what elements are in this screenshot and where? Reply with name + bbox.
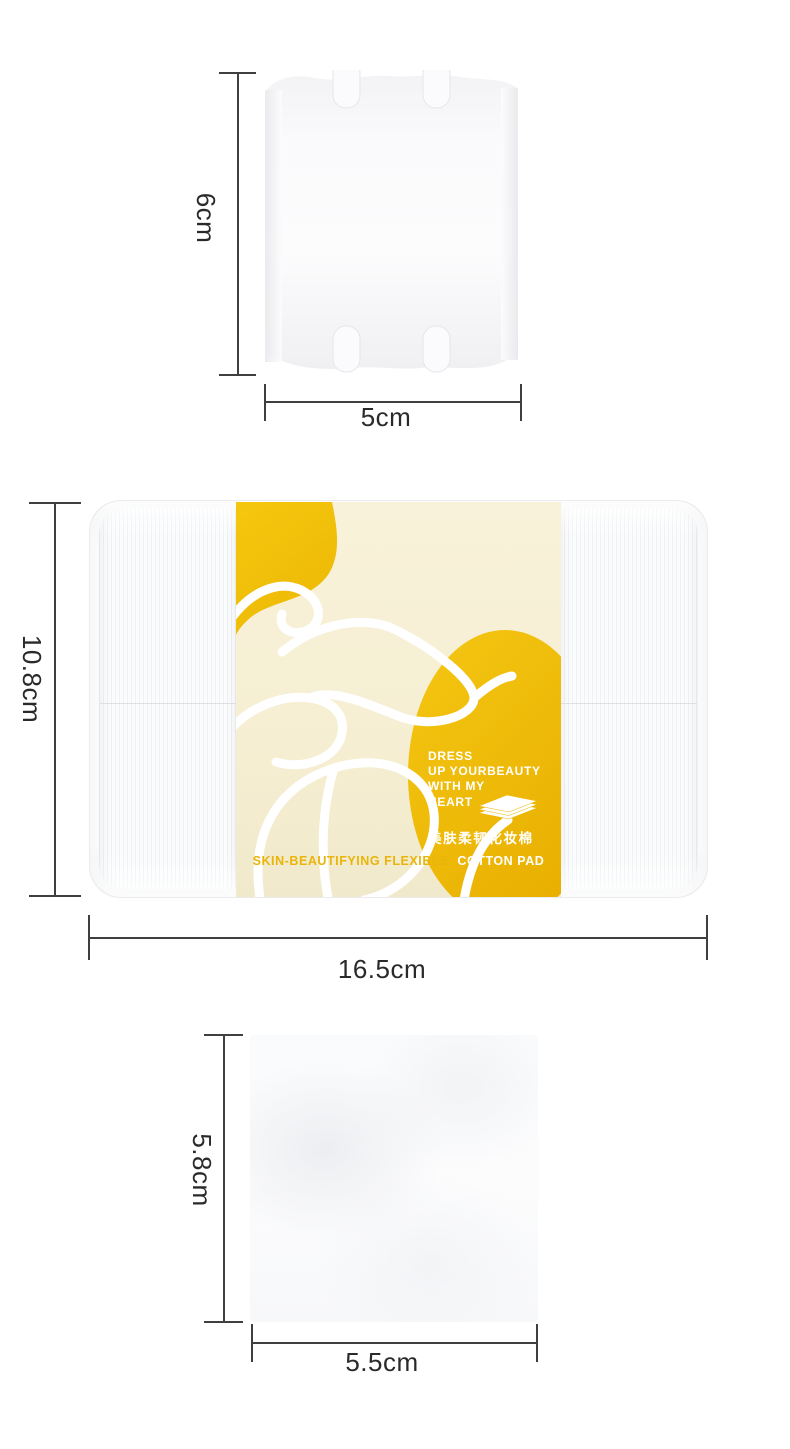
width-value-package: 16.5cm (312, 954, 452, 984)
dimension-cap (29, 502, 81, 504)
product-name-english: SKIN-BEAUTIFYING FLEXIBLE COTTON PAD (236, 854, 561, 868)
height-value-bottom: 5.8cm (187, 1115, 217, 1225)
height-value-top: 6cm (191, 173, 221, 263)
product-name-english-white: COTTON PAD (457, 854, 544, 868)
cotton-pad-stack-icon (473, 791, 543, 821)
cotton-pad-photo-bottom (250, 1035, 538, 1322)
slogan-line: UP YOURBEAUTY (428, 764, 541, 779)
dimension-cap (29, 895, 81, 897)
pad-fold-right (501, 88, 518, 360)
width-value-top: 5cm (326, 402, 446, 432)
stacked-pads-right (560, 508, 698, 890)
dimension-cap (219, 72, 256, 74)
slogan-line: DRESS (428, 749, 541, 764)
width-dimension-line-bottom (252, 1342, 537, 1344)
product-name-english-gold: SKIN-BEAUTIFYING FLEXIBLE (253, 854, 449, 868)
cotton-pad-photo-top (263, 70, 520, 376)
dimension-cap (520, 384, 522, 421)
width-dimension-line-package (89, 937, 708, 939)
pad-fold-left (265, 90, 282, 362)
package-label-band: DRESS UP YOURBEAUTY WITH MY HEART 美肤柔韧化妆… (236, 502, 561, 897)
height-dimension-line-top (237, 73, 239, 375)
stacked-pads-left (99, 508, 237, 890)
pad-body (265, 75, 518, 369)
product-name-chinese: 美肤柔韧化妆棉 (428, 827, 534, 847)
dimension-cap (251, 1324, 253, 1362)
dimension-cap (706, 915, 708, 960)
width-value-bottom: 5.5cm (312, 1347, 452, 1377)
product-size-diagram: 6cm 5cm (0, 0, 790, 1449)
height-value-package: 10.8cm (17, 619, 47, 739)
dimension-cap (219, 374, 256, 376)
height-dimension-line-package (54, 503, 56, 896)
height-dimension-line-bottom (223, 1035, 225, 1322)
dimension-cap (536, 1324, 538, 1362)
dimension-cap (204, 1321, 243, 1323)
dimension-cap (204, 1034, 243, 1036)
dimension-cap (264, 384, 266, 421)
dimension-cap (88, 915, 90, 960)
